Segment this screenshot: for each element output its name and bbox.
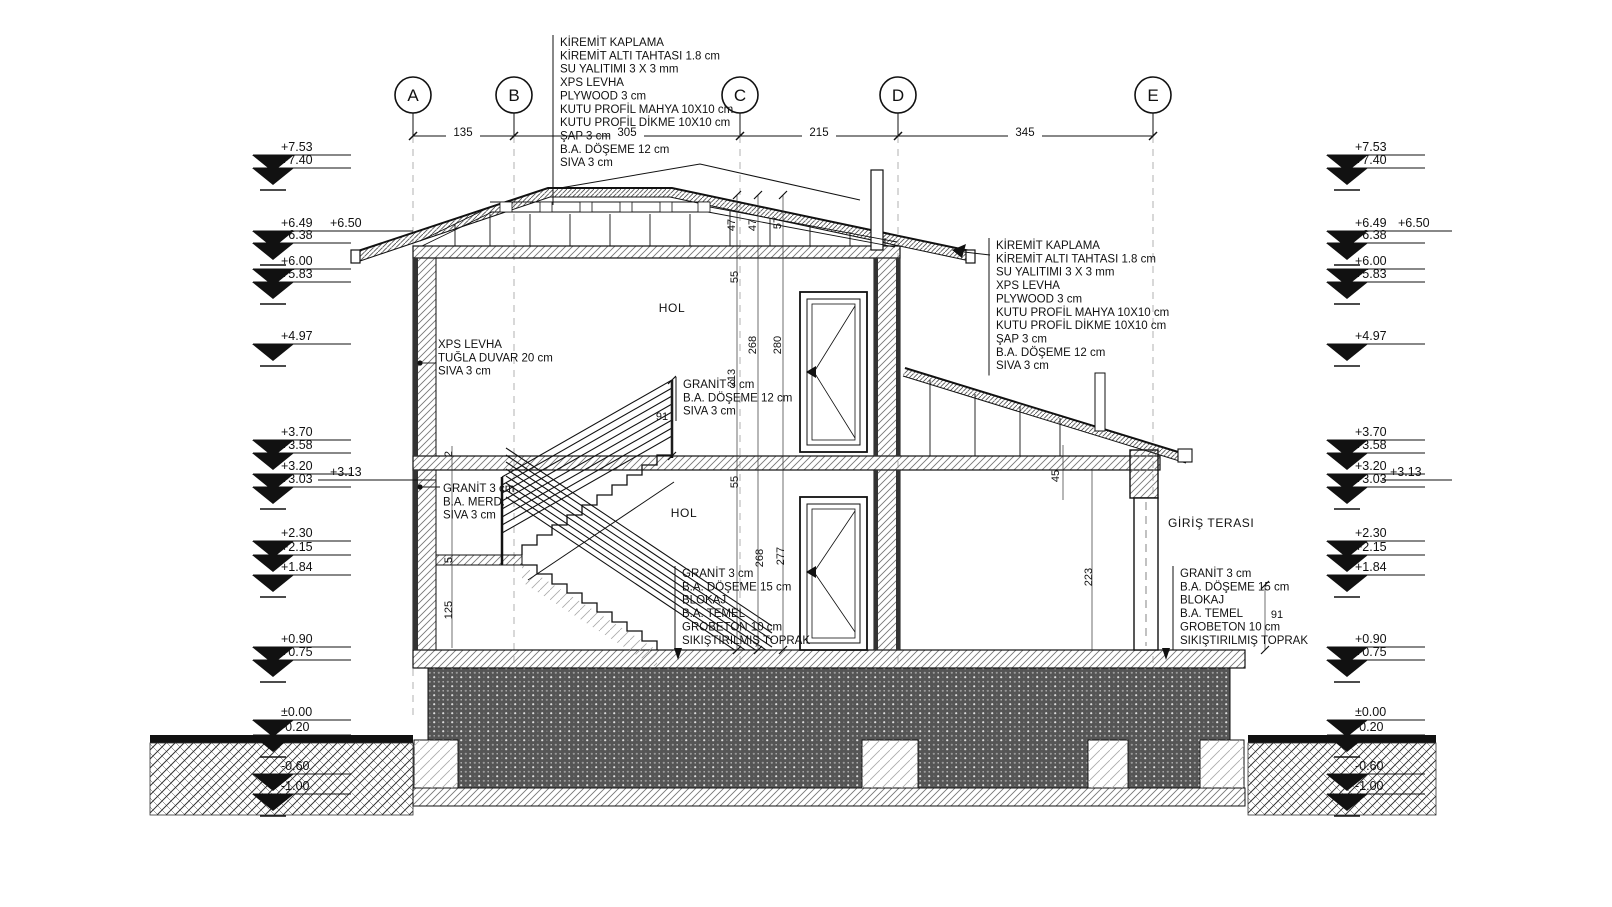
terrace-roof: [903, 368, 1192, 463]
level-label: +6.38: [1355, 228, 1387, 242]
level-extra-label: +3.13: [1390, 465, 1422, 479]
level-label: +4.97: [281, 329, 313, 343]
section-drawing: ABCDE135305215345: [0, 0, 1612, 907]
dim-text: 223: [1083, 568, 1095, 586]
level-label: +4.97: [1355, 329, 1387, 343]
spec-block-ground_right: GRANİT 3 cmB.A. DÖŞEME 15 cmBLOKAJB.A. T…: [1180, 567, 1308, 647]
eave-end-left: [351, 250, 360, 263]
level-triangle: [252, 344, 294, 361]
level-label: +7.40: [1355, 153, 1387, 167]
level-label: +2.15: [281, 540, 313, 554]
terrace-roof-top: [905, 368, 1188, 455]
level-label: +3.70: [281, 425, 313, 439]
dim-text: 45: [1050, 470, 1062, 482]
dim-text: 213: [726, 369, 738, 387]
level-extra-label: +6.50: [330, 216, 362, 230]
door-upper: [800, 292, 867, 452]
level-label: +6.00: [281, 254, 313, 268]
stair-upper-underside: [528, 482, 674, 580]
dim-text: 268: [754, 549, 766, 567]
level-label: ±0.00: [1355, 705, 1386, 719]
dim-text: 268: [747, 336, 759, 354]
level-label: +6.00: [1355, 254, 1387, 268]
dim-text: 91: [656, 411, 668, 423]
door-lower: [800, 497, 867, 650]
level-label: +3.03: [281, 472, 313, 486]
dim-text: 5: [443, 557, 455, 563]
left-wall-xps-lower: [413, 470, 418, 650]
level-extra-label: +3.13: [330, 465, 362, 479]
level-label: +5.83: [281, 267, 313, 281]
level-label: ±0.00: [281, 705, 312, 719]
level-label: +0.90: [281, 632, 313, 646]
right-wall-edge: [874, 470, 878, 650]
level-label: +1.84: [1355, 560, 1387, 574]
level-triangle: [1326, 282, 1368, 299]
terrace-roof-post: [1095, 373, 1105, 431]
level-label: +0.75: [281, 645, 313, 659]
level-label: -0.20: [281, 720, 310, 734]
right-wall-edge: [896, 470, 900, 650]
grid-label-C: C: [734, 86, 746, 105]
level-triangle: [252, 168, 294, 185]
spec-block-wall_left: XPS LEVHATUĞLA DUVAR 20 cmSIVA 3 cm: [438, 339, 553, 378]
dim-text: 277: [775, 547, 787, 565]
level-triangle: [252, 575, 294, 592]
level-label: +2.15: [1355, 540, 1387, 554]
level-label: +3.70: [1355, 425, 1387, 439]
level-label: +7.53: [1355, 140, 1387, 154]
ceiling-slab: [413, 246, 900, 258]
level-triangle: [252, 660, 294, 677]
room-label-hol-lower: HOL: [671, 506, 697, 520]
grid-axes: ABCDE135305215345: [395, 77, 1171, 140]
doors: [800, 292, 867, 650]
left-wall-xps-upper: [413, 258, 418, 456]
footing-hatch: [1200, 740, 1244, 788]
dim-text: 57: [772, 217, 784, 229]
spec-block-roof_top: KİREMİT KAPLAMAKİREMİT ALTI TAHTASI 1.8 …: [560, 36, 733, 169]
level-label: +3.58: [1355, 438, 1387, 452]
level-label: +1.84: [281, 560, 313, 574]
drawing-canvas: ABCDE135305215345: [0, 0, 1612, 907]
level-label: -1.00: [281, 779, 310, 793]
level-label: -0.60: [281, 759, 310, 773]
level-triangle: [1326, 344, 1368, 361]
right-wall-edge: [896, 258, 900, 456]
grobeton-strip: [413, 788, 1245, 806]
right-wall-edge: [874, 258, 878, 456]
terrace-roof-bottom: [903, 376, 1186, 463]
level-extra-label: +6.50: [1398, 216, 1430, 230]
level-label: +3.58: [281, 438, 313, 452]
dim-text: 55: [729, 271, 741, 283]
dim-text: 47: [747, 219, 759, 231]
level-triangle: [1326, 575, 1368, 592]
room-labels: HOL HOL GİRİŞ TERASI: [659, 301, 1255, 530]
first-floor-slab: [413, 450, 1160, 498]
dim-text: 125: [443, 601, 455, 619]
level-label: +6.38: [281, 228, 313, 242]
level-label: -0.60: [1355, 759, 1384, 773]
terrace-roof-end: [1178, 449, 1192, 462]
level-label: +5.83: [1355, 267, 1387, 281]
level-label: +3.03: [1355, 472, 1387, 486]
level-label: +7.40: [281, 153, 313, 167]
level-triangle: [252, 487, 294, 504]
dim-text: 47: [726, 219, 738, 231]
level-label: +3.20: [1355, 459, 1387, 473]
dim-text: 2: [443, 451, 455, 457]
footing-hatch: [1088, 740, 1128, 788]
level-triangle: [252, 282, 294, 299]
level-label: -1.00: [1355, 779, 1384, 793]
grid-span-dim: 345: [1015, 127, 1034, 139]
room-label-hol-upper: HOL: [659, 301, 685, 315]
terrace-edge-beam: [1130, 450, 1158, 498]
grid-label-E: E: [1147, 86, 1158, 105]
grid-span-dim: 135: [453, 127, 472, 139]
terrace-roof-fill: [903, 368, 1188, 463]
grid-label-B: B: [508, 86, 519, 105]
dim-text: 55: [729, 476, 741, 488]
spec-block-roof_right: KİREMİT KAPLAMAKİREMİT ALTI TAHTASI 1.8 …: [996, 239, 1169, 372]
level-label: +0.75: [1355, 645, 1387, 659]
grid-label-D: D: [892, 86, 904, 105]
level-triangle: [1326, 168, 1368, 185]
room-label-giris-terasi: GİRİŞ TERASI: [1168, 516, 1254, 530]
dim-text: 280: [772, 336, 784, 354]
level-label: +2.30: [281, 526, 313, 540]
footing-hatch: [414, 740, 458, 788]
level-label: +3.20: [281, 459, 313, 473]
dim-chain-right: [1063, 445, 1092, 650]
grid-span-dim: 215: [809, 127, 828, 139]
footing-hatch: [862, 740, 918, 788]
level-triangle: [1326, 487, 1368, 504]
spec-blocks: KİREMİT KAPLAMAKİREMİT ALTI TAHTASI 1.8 …: [438, 35, 1308, 650]
level-label: +0.90: [1355, 632, 1387, 646]
level-triangle: [1326, 660, 1368, 677]
level-label: -0.20: [1355, 720, 1384, 734]
ground-floor-slab: [413, 650, 1245, 668]
level-label: +7.53: [281, 140, 313, 154]
level-label: +2.30: [1355, 526, 1387, 540]
grid-label-A: A: [407, 86, 419, 105]
foundation: [413, 668, 1245, 806]
dim-text: 91: [1271, 609, 1283, 621]
